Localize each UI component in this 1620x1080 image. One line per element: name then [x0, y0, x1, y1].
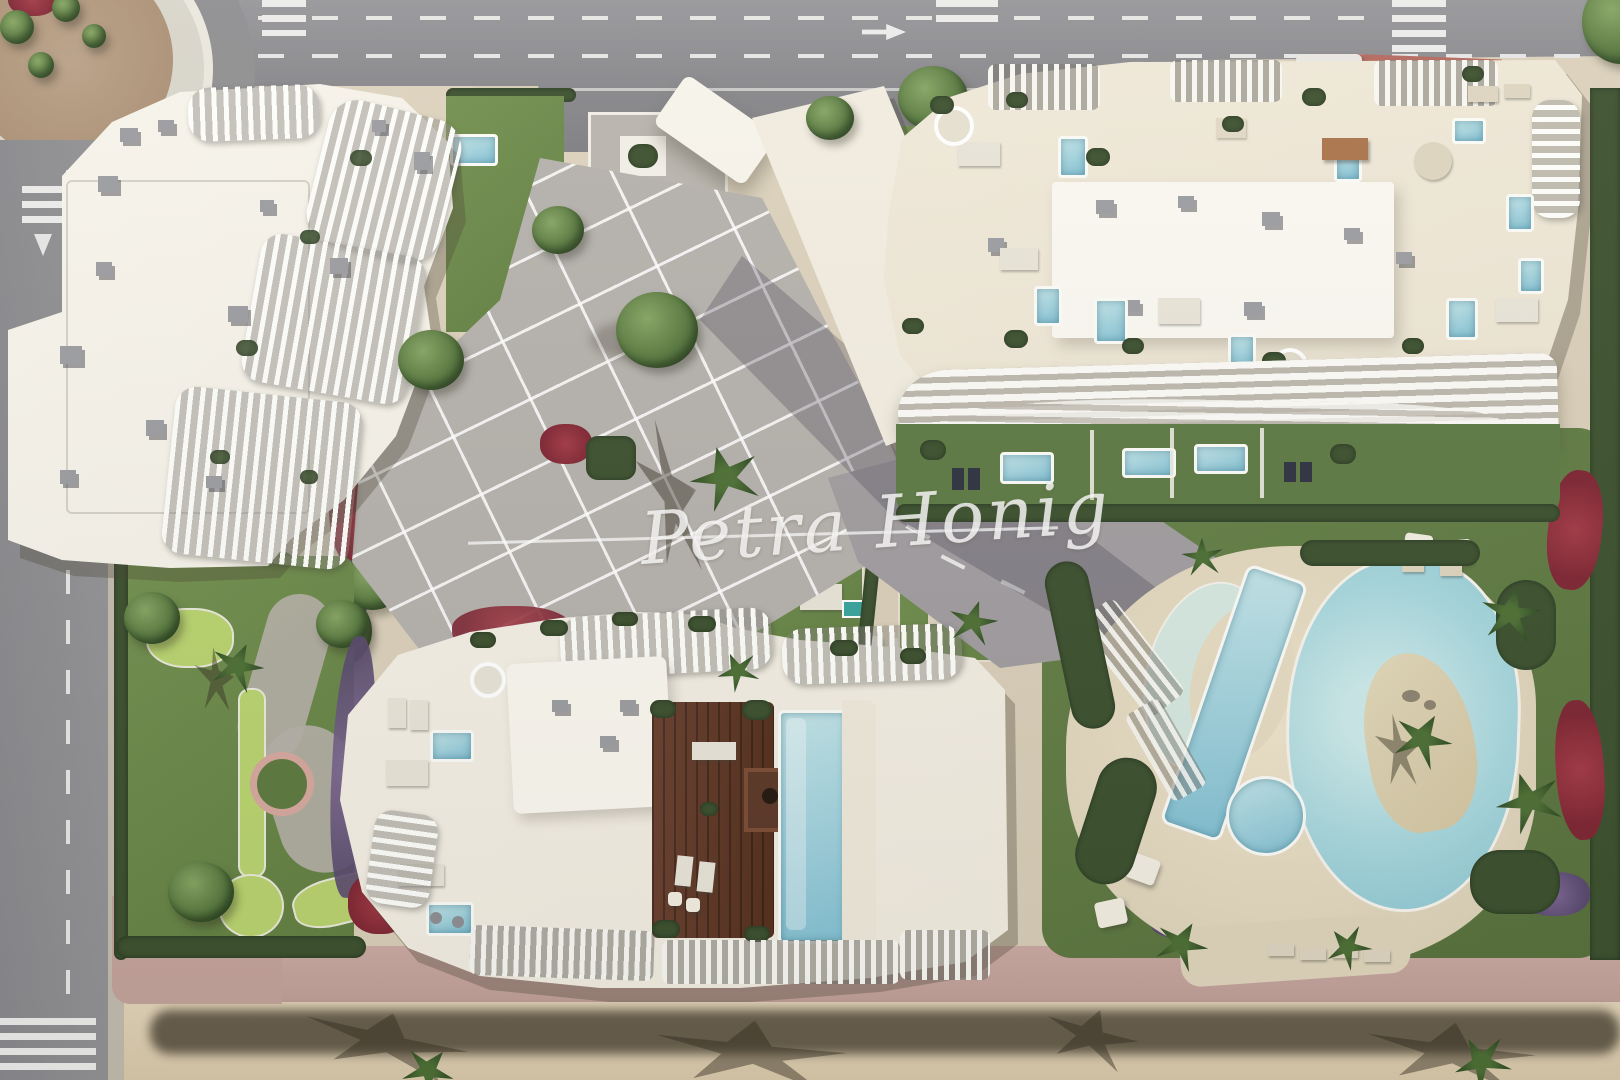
plaza-planting [540, 424, 592, 464]
rooftop-sofa [1496, 298, 1538, 322]
plaza-planting [586, 436, 636, 480]
kids-pool [1226, 776, 1306, 856]
deck-hedge [1300, 540, 1480, 566]
rooftop-plunge-pool [1058, 136, 1088, 178]
pool-shallow-ledge [786, 718, 806, 930]
lounger [1440, 566, 1462, 576]
rooftop-ac-unit [552, 700, 568, 712]
terrace-plant [612, 612, 638, 626]
garden-divider-wall [1170, 428, 1174, 498]
rooftop-ac-unit [146, 420, 164, 436]
rooftop-ac-unit [158, 120, 174, 132]
rooftop-dining-table [1322, 138, 1368, 160]
terrace-plant [236, 340, 258, 356]
rooftop-ac-unit [1396, 252, 1412, 264]
terrace-plant [1122, 338, 1144, 354]
aerial-render-canvas: Petra Honig [0, 0, 1620, 1080]
hedge [116, 936, 366, 958]
rooftop-ac-unit [120, 128, 138, 142]
terrace-plant [688, 616, 716, 632]
deck-dining-table [692, 742, 736, 760]
rooftop-ac-unit [620, 700, 636, 712]
rooftop-ac-unit [228, 306, 248, 322]
rooftop-sofa [1000, 248, 1038, 270]
building-c-railing [364, 808, 440, 910]
rooftop-ac-unit [1344, 228, 1360, 240]
building-c-railing [900, 930, 990, 980]
terrace-lounger [410, 700, 428, 730]
rooftop-rug [1414, 142, 1452, 180]
island-rock [1402, 690, 1420, 702]
terrace-plant [930, 96, 954, 114]
rooftop-ac-unit [206, 476, 222, 488]
crosswalk [1392, 0, 1446, 64]
garden-shrub [1330, 444, 1356, 464]
deck-plant [650, 700, 676, 718]
terrace-plant [1462, 66, 1484, 82]
garden-tree [806, 96, 854, 140]
egg-chair [430, 912, 442, 924]
terrace-plant [1222, 116, 1244, 132]
rooftop-ac-unit [1096, 200, 1114, 214]
building-c-pergola [781, 623, 963, 685]
garden-shrub [920, 440, 946, 460]
terrace-plant [470, 632, 496, 648]
terrace-plant [210, 450, 230, 464]
rooftop-ac-unit [98, 176, 118, 192]
rooftop-plunge-pool [1506, 194, 1534, 232]
rooftop-lounger [1468, 86, 1498, 102]
roundabout-cactus [28, 52, 54, 78]
plaza-tree [616, 292, 698, 368]
deck-plant [652, 920, 680, 938]
deck-plant [742, 700, 772, 720]
plaza-tree [532, 206, 584, 254]
building-a-pergola [187, 84, 321, 143]
terrace-plant [902, 318, 924, 334]
lounger [1268, 944, 1294, 956]
rooftop-ac-unit [60, 470, 76, 484]
rooftop-ac-unit [60, 346, 82, 364]
building-c-railing [469, 925, 655, 981]
terrace-lounger [388, 698, 406, 728]
rooftop-ac-unit [600, 736, 616, 748]
roundabout-cactus [0, 10, 34, 44]
rooftop-ac-unit [260, 200, 274, 212]
building-b-pergola [1170, 60, 1282, 102]
private-plunge-pool [1194, 444, 1248, 474]
rooftop-plunge-pool [1094, 298, 1128, 344]
rooftop-ac-unit [330, 258, 348, 274]
terrace-plant [300, 470, 318, 484]
lounger [1364, 950, 1390, 962]
spiral-stair [470, 662, 506, 698]
terrace-plunge-pool [430, 730, 474, 762]
rooftop-ac-unit [96, 262, 112, 276]
crosswalk [262, 0, 306, 36]
terrace-plant [1004, 330, 1028, 348]
terrace-plant [900, 648, 926, 664]
rooftop-lounger [1504, 84, 1530, 98]
garden-tree [124, 592, 180, 644]
rooftop-ac-unit [1178, 196, 1194, 208]
lounger [1300, 948, 1326, 960]
private-plunge-pool [1122, 448, 1176, 478]
rooftop-plunge-pool [1446, 298, 1478, 340]
building-c-core-roof [506, 656, 674, 814]
rooftop-ac-unit [1244, 302, 1262, 316]
garden-lounger [1284, 462, 1296, 482]
rooftop-ac-unit [372, 120, 386, 132]
terrace-plant [540, 620, 568, 636]
building-a-balcony-fins [160, 385, 365, 572]
deck-plant [700, 802, 718, 816]
garden-tree [168, 862, 234, 922]
terrace-plant [1402, 338, 1424, 354]
bean-bag [668, 892, 682, 906]
building-b-pergola [1532, 100, 1580, 218]
rooftop-plunge-pool [1452, 118, 1486, 144]
rooftop-sofa [1158, 298, 1200, 324]
terrace-plant [300, 230, 320, 244]
garden-tree [398, 330, 464, 390]
rooftop-sofa [958, 142, 1000, 166]
deck-hedge [1470, 850, 1560, 914]
rooftop-ac-unit [1262, 212, 1280, 226]
terrace-sofa [386, 760, 428, 786]
crosswalk [936, 0, 998, 30]
terrace-plant [1086, 148, 1110, 166]
egg-chair [452, 916, 464, 928]
deck-hedge [1496, 580, 1556, 670]
pool-deck-lip [842, 700, 876, 944]
deck-lounger [696, 861, 715, 893]
building-c-railing [662, 940, 900, 984]
island-rock [1424, 700, 1436, 710]
terrace-plant [830, 640, 858, 656]
pavilion-fire-table [762, 788, 778, 804]
garden-lounger [1300, 462, 1312, 482]
roundabout-cactus [82, 24, 106, 48]
terrace-plant [350, 150, 372, 166]
building-b-pergola [988, 64, 1100, 110]
terrace-plant [1006, 92, 1028, 108]
rooftop-ac-unit [414, 152, 430, 170]
bean-bag [686, 898, 700, 912]
terrace-plant [1302, 88, 1326, 106]
rooftop-plunge-pool [1034, 286, 1062, 326]
planter-greenery [628, 144, 658, 168]
deck-lounger [674, 855, 693, 887]
crosswalk [0, 1018, 96, 1072]
rooftop-plunge-pool [1518, 258, 1544, 294]
garden-divider-wall [1260, 428, 1264, 498]
round-planter [250, 752, 314, 816]
lane-dashes [150, 16, 1400, 20]
